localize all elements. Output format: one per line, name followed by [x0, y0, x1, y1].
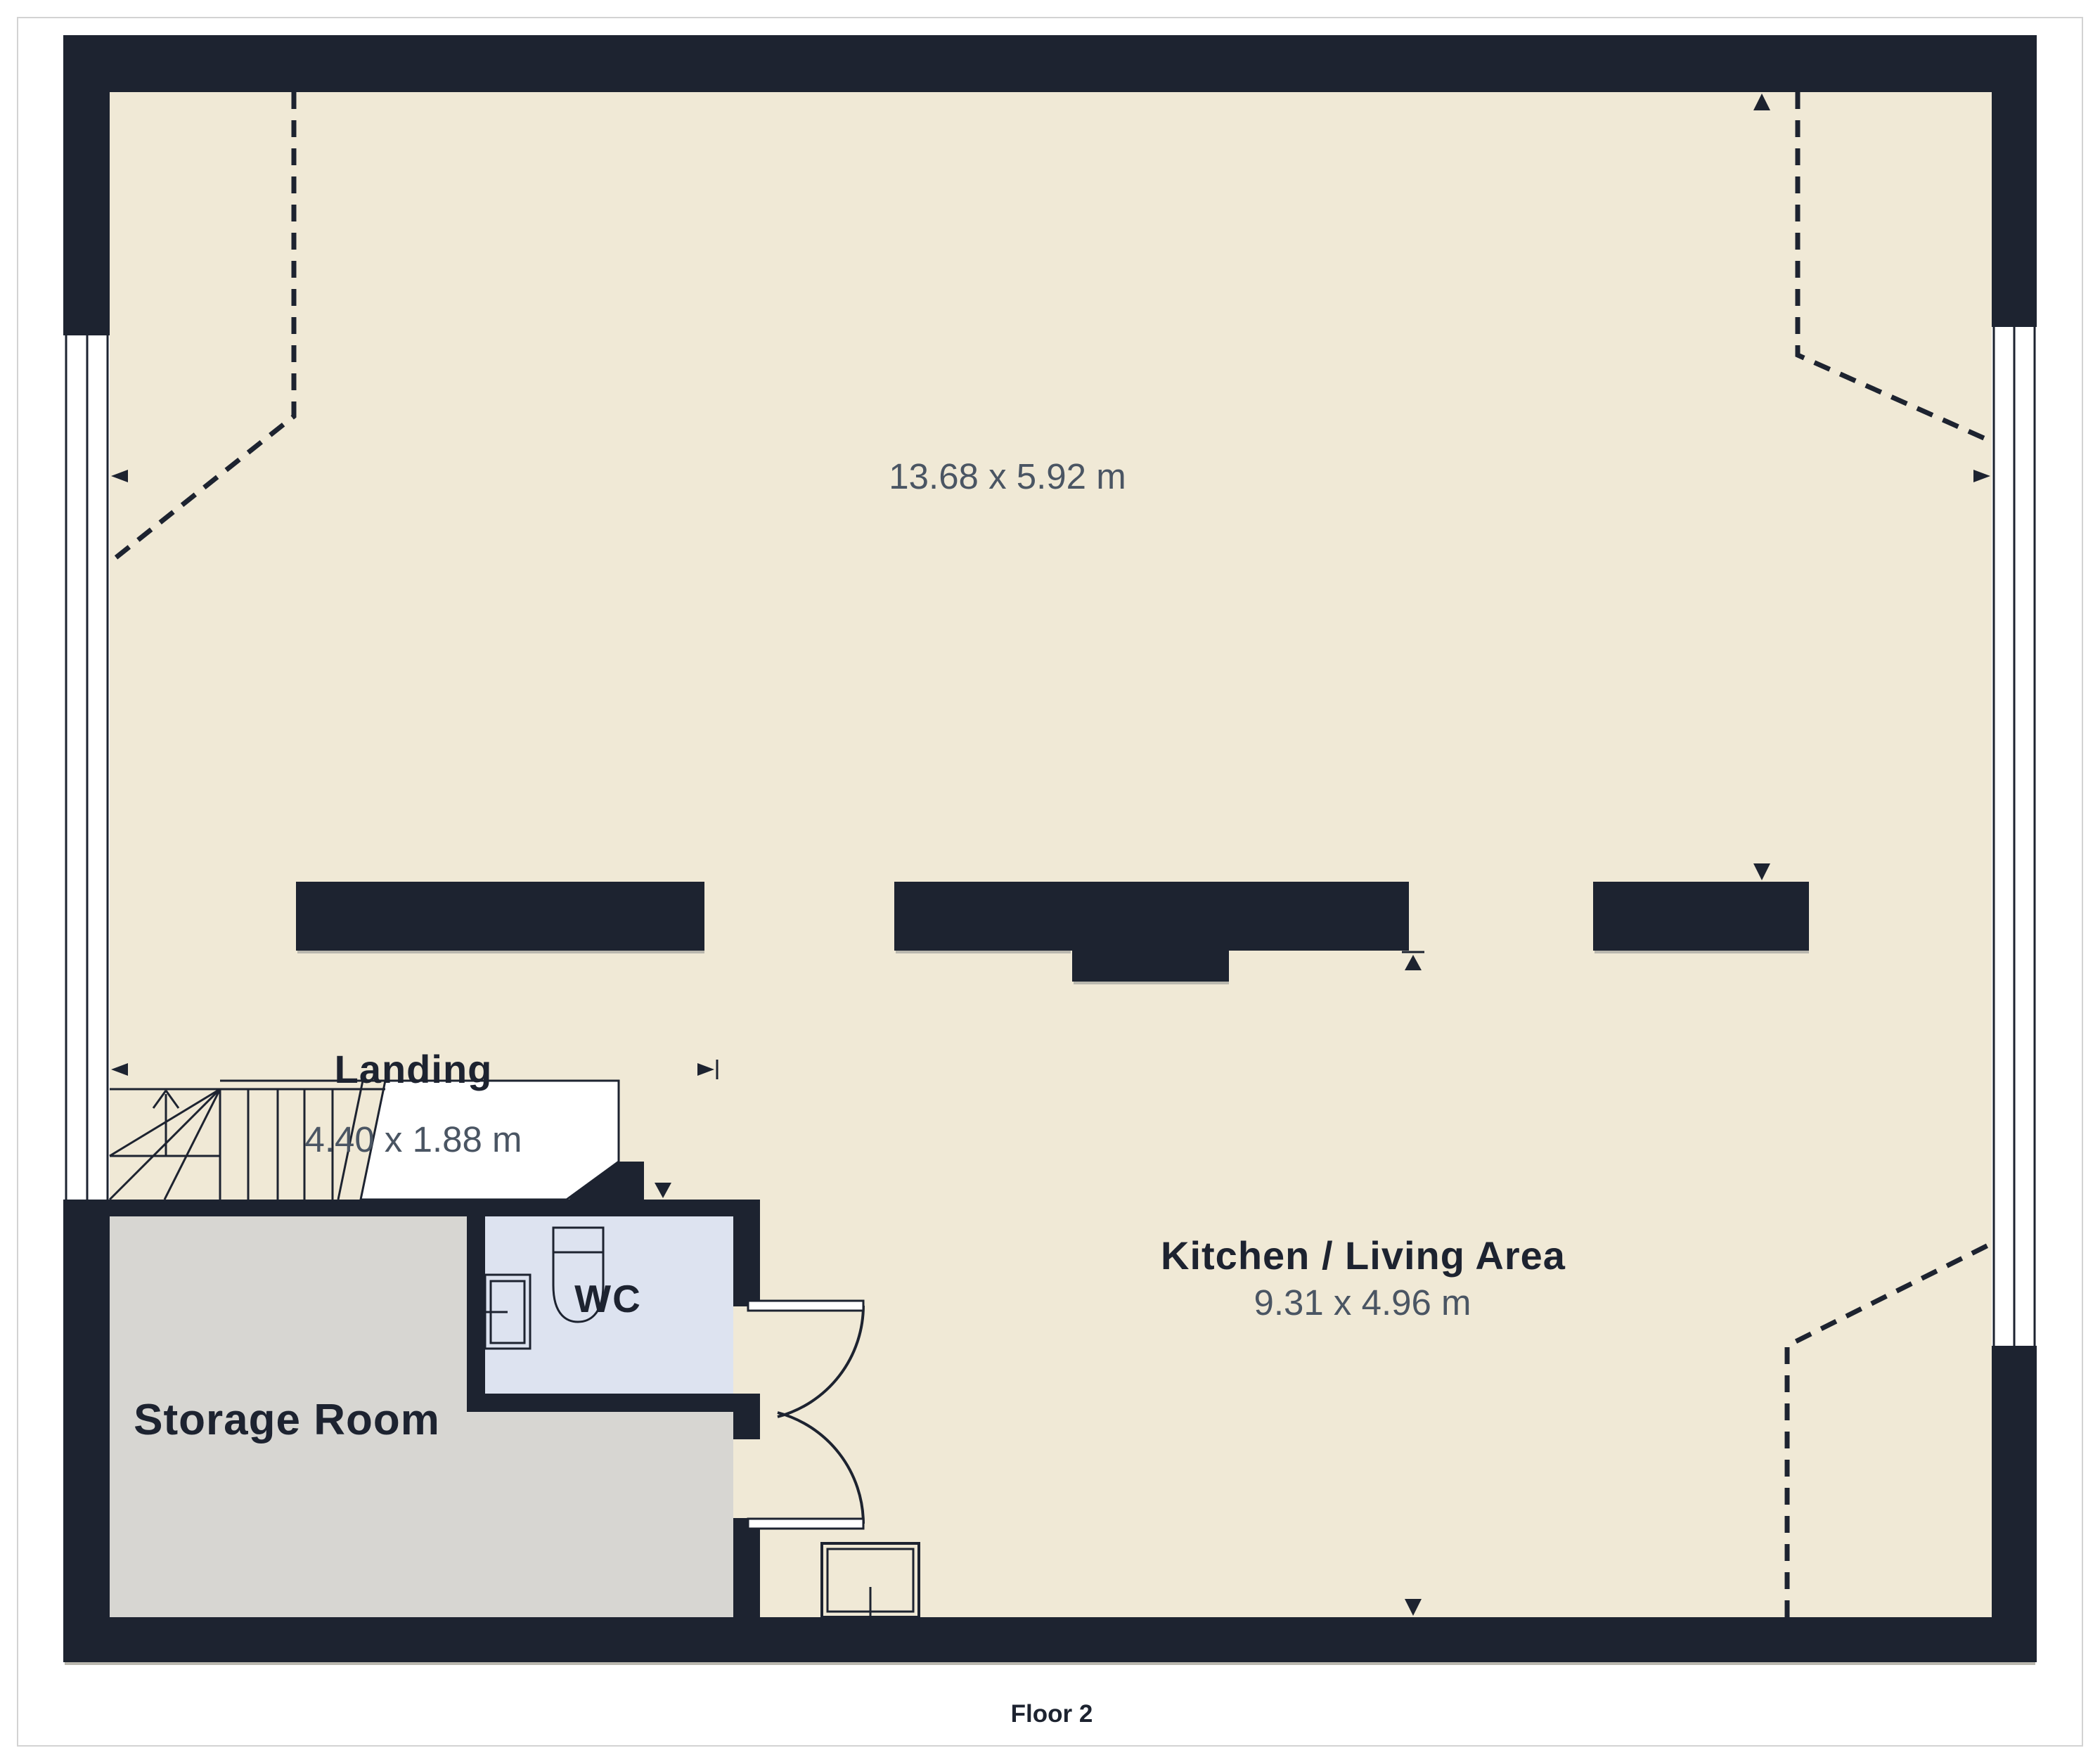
wc-wall-right-upper	[733, 1200, 760, 1306]
storage-wall-right-lower	[733, 1518, 760, 1620]
wc-wall-left	[467, 1200, 485, 1412]
partial-wall-left	[296, 882, 704, 952]
wc-door-leaf	[748, 1301, 863, 1311]
landing-dims: 4.40 x 1.88 m	[304, 1119, 522, 1159]
door-jamb-stub	[733, 1398, 760, 1439]
right-window	[1992, 327, 2037, 1346]
partial-wall-right	[1593, 882, 1809, 952]
landing-divider-wall	[65, 1200, 479, 1216]
floor-plan-page: 13.68 x 5.92 m Landing 4.40 x 1.88 m Kit…	[0, 0, 2100, 1755]
wc-wall-top	[467, 1200, 760, 1216]
floor-plan-canvas: 13.68 x 5.92 m Landing 4.40 x 1.88 m Kit…	[0, 0, 2100, 1755]
main-room-dims: 13.68 x 5.92 m	[889, 456, 1126, 496]
storage-door-leaf	[748, 1519, 863, 1529]
floor-caption: Floor 2	[1011, 1700, 1093, 1728]
wc-wall-bottom	[467, 1394, 760, 1412]
kitchen-living-label: Kitchen / Living Area	[1161, 1233, 1566, 1278]
kitchen-living-dims: 9.31 x 4.96 m	[1254, 1282, 1471, 1323]
landing-label: Landing	[335, 1047, 493, 1091]
left-window	[63, 335, 110, 1200]
kitchen-counter-icon	[822, 1543, 919, 1617]
wc-room-label: WC	[574, 1277, 642, 1320]
storage-room-label: Storage Room	[134, 1396, 440, 1444]
